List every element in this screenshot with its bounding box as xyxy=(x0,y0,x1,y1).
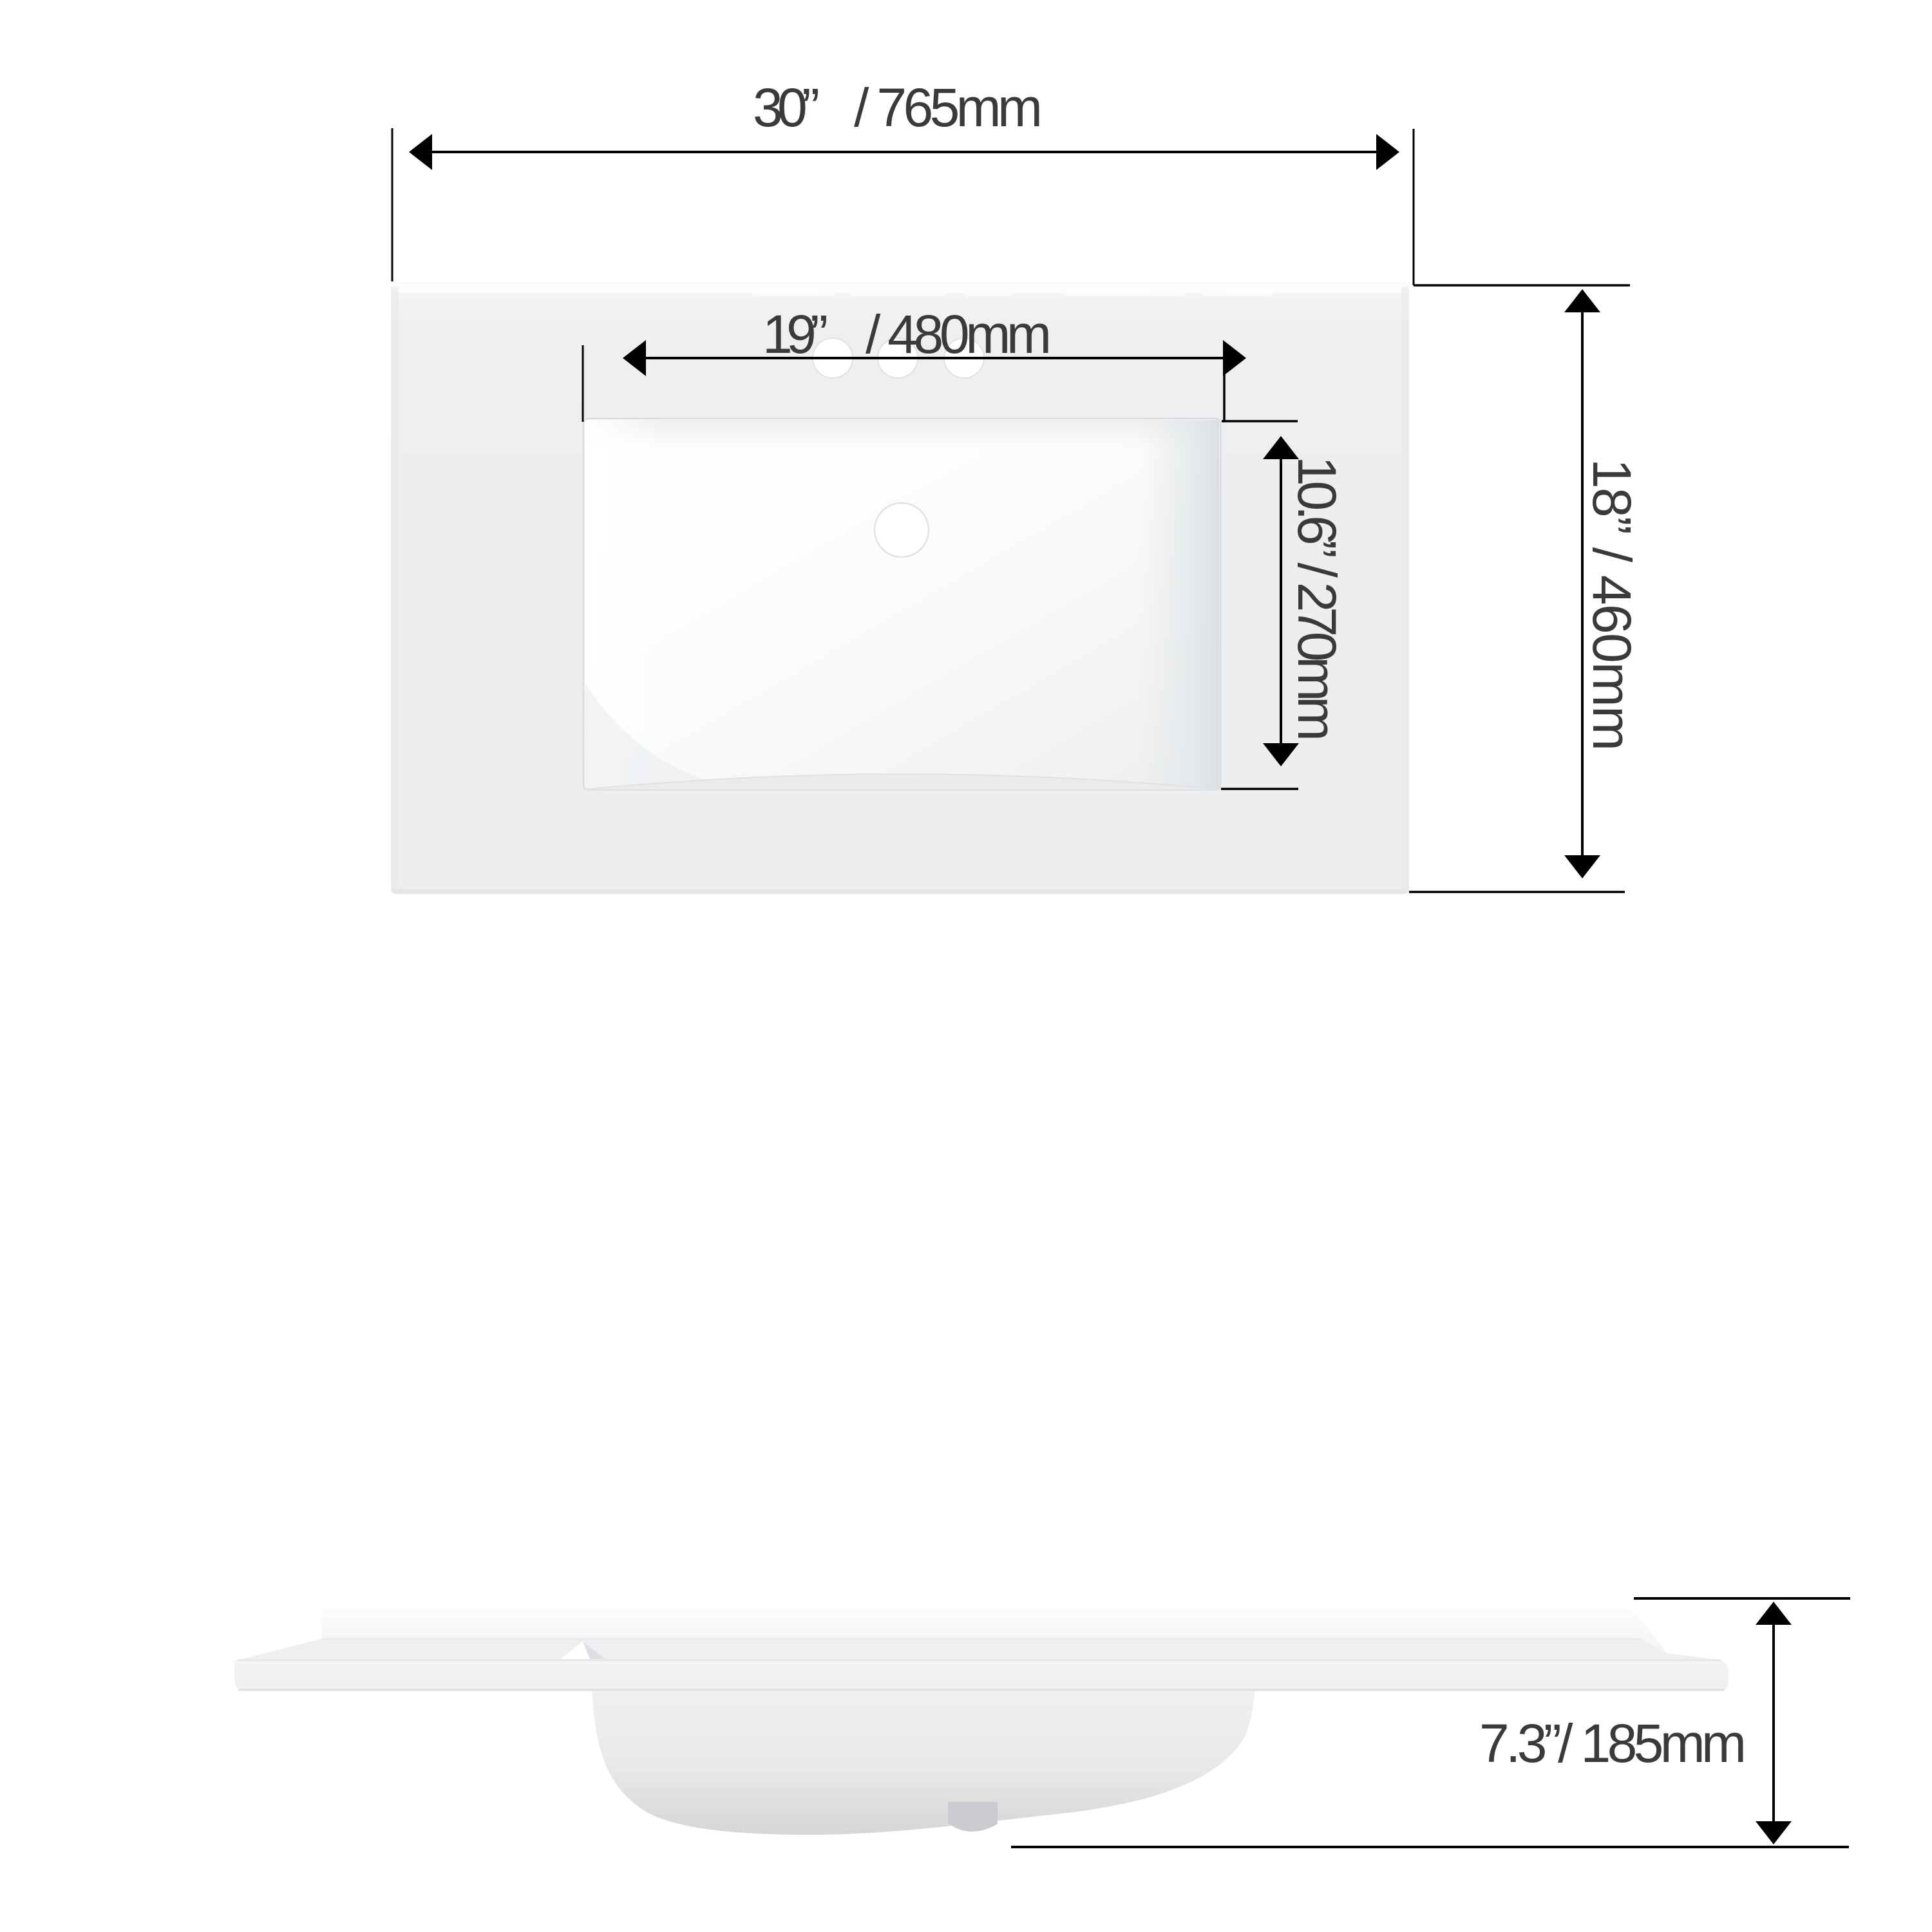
svg-text:30”: 30” xyxy=(753,77,819,138)
svg-text:18” / 460mm: 18” / 460mm xyxy=(1582,459,1642,750)
svg-text:7.3”/ 185mm: 7.3”/ 185mm xyxy=(1479,1713,1746,1774)
svg-text:10.6” / 270mm: 10.6” / 270mm xyxy=(1287,456,1347,741)
svg-text:/ 765mm: / 765mm xyxy=(854,77,1042,138)
svg-text:/ 480mm: / 480mm xyxy=(866,304,1051,365)
svg-text:19”: 19” xyxy=(762,304,828,365)
